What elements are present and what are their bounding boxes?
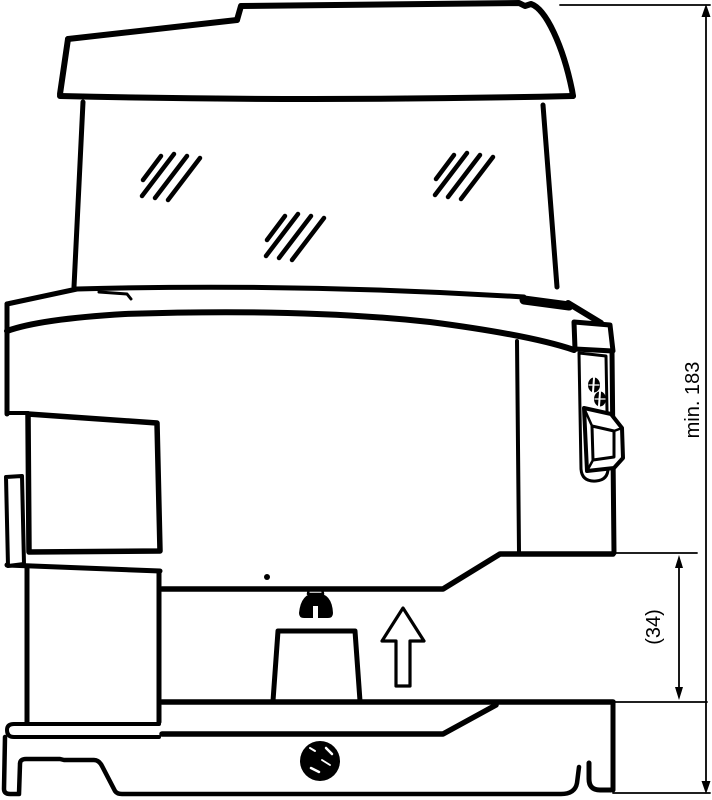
switch-assembly xyxy=(574,322,623,553)
lid xyxy=(60,3,573,99)
shelf-right-clip xyxy=(524,300,569,306)
switch-bracket xyxy=(574,322,613,351)
shelf-top-edge xyxy=(77,287,524,297)
glass-reflection-icon xyxy=(435,153,493,199)
mount-knob xyxy=(299,588,333,618)
upper-door-panel xyxy=(28,414,160,552)
pin-hole-dot xyxy=(264,574,270,580)
glass-reflection-icon xyxy=(266,214,324,260)
base xyxy=(4,702,613,794)
height-dimension-label: min. 183 xyxy=(682,362,704,439)
screw-icon xyxy=(594,392,606,407)
panel-split-line xyxy=(7,565,160,571)
left-door-panels xyxy=(6,414,160,737)
arrowhead-down-icon xyxy=(702,781,711,794)
support-block xyxy=(273,631,360,701)
lid-handle-strip xyxy=(237,3,573,96)
base-outline xyxy=(4,737,579,794)
appliance-side-view-diagram: min. 183 (34) xyxy=(0,0,712,800)
recess-dimension-label: (34) xyxy=(643,609,665,645)
shelf-detail-line xyxy=(99,292,131,299)
technical-drawing-page: min. 183 (34) xyxy=(0,0,712,800)
lid-top-edge xyxy=(68,20,237,39)
hood-right-edge xyxy=(543,105,557,287)
lift-arrow-icon xyxy=(382,608,424,686)
base-recess xyxy=(162,554,613,734)
plinth-bar xyxy=(7,724,159,737)
glass-reflection-icon xyxy=(142,154,200,200)
body-top-edge xyxy=(7,312,574,350)
arrowhead-up-icon xyxy=(702,4,711,17)
side-handle-strip xyxy=(6,476,24,566)
body-front-right-edge xyxy=(517,341,519,552)
base-inner-corner xyxy=(589,763,611,790)
caster-wheel-icon xyxy=(300,741,340,781)
lid-bottom-edge xyxy=(60,96,573,99)
glass-hood xyxy=(74,102,557,287)
screw-icon xyxy=(588,378,600,393)
arrowhead-down-icon xyxy=(675,687,683,700)
switch-face xyxy=(592,426,614,460)
lid-left-edge xyxy=(60,39,68,94)
recess-top-edge xyxy=(162,554,613,589)
power-switch xyxy=(584,408,623,471)
plinth-step-edge xyxy=(162,705,496,734)
hood-left-edge xyxy=(74,102,83,287)
shelf-left-bevel xyxy=(7,289,77,304)
arrowhead-up-icon xyxy=(675,555,683,568)
recess-dimension: (34) xyxy=(613,553,707,702)
